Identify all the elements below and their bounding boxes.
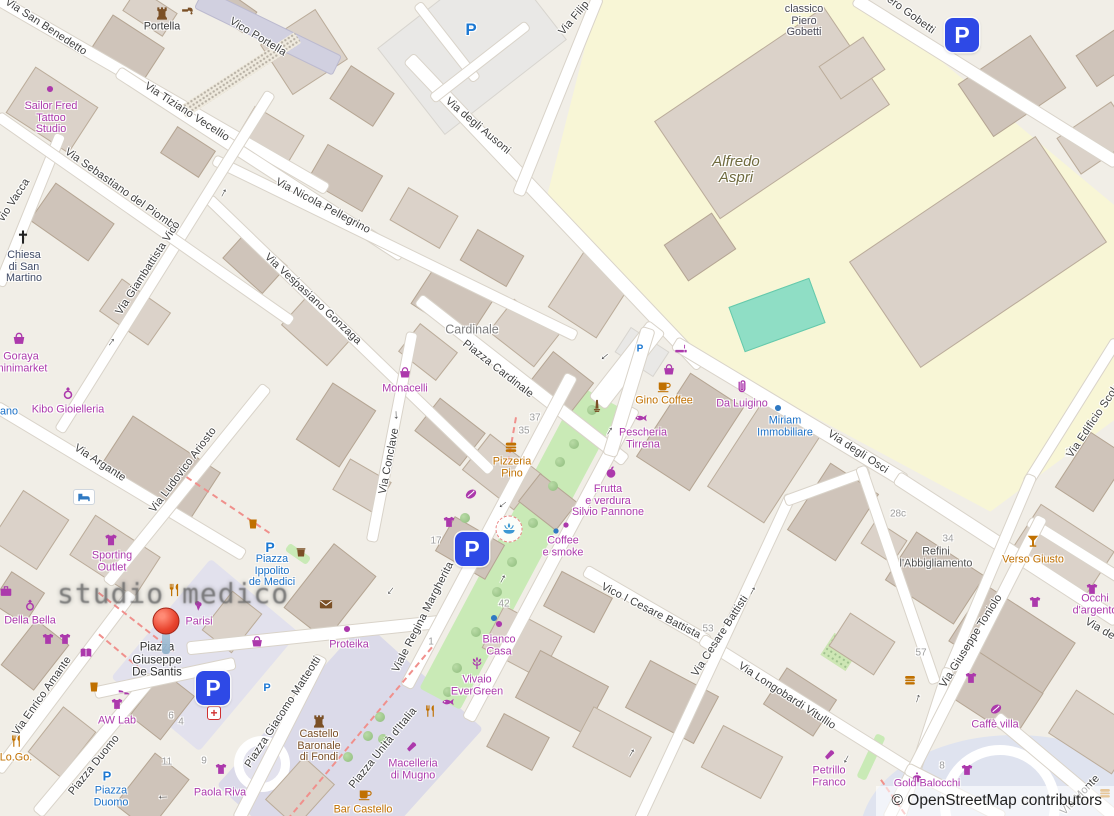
poi-label: Gino Coffee xyxy=(635,395,692,407)
poi-label: Lo.Go. xyxy=(0,752,32,764)
house-number: 6 xyxy=(168,711,174,722)
cross-icon xyxy=(16,230,31,245)
poi-label: Della Bella xyxy=(4,615,56,627)
poi-label: Monacelli xyxy=(382,383,428,395)
poi-label: Coffee e smoke xyxy=(543,536,584,559)
place-label: Refini l'Abbigliamento xyxy=(900,547,973,570)
house-number: 28c xyxy=(890,509,906,520)
one-way-arrow-icon: → xyxy=(393,408,403,421)
poi-label: Goraya minimarket xyxy=(0,352,47,375)
place-label: classico Piero Gobetti xyxy=(785,4,823,39)
parking-icon[interactable]: P xyxy=(945,18,979,52)
place-label: Portella xyxy=(144,21,181,33)
building xyxy=(1075,29,1114,87)
paperclip-icon xyxy=(735,379,750,394)
street-label: Via San Benedetto xyxy=(3,0,89,58)
poi-label: ano xyxy=(0,406,18,418)
street-label: Via Conclave xyxy=(377,427,402,495)
one-way-arrow-icon: → xyxy=(909,690,923,705)
cocktail-icon xyxy=(1026,534,1040,548)
place-label: Chiesa di San Martino xyxy=(6,250,42,285)
dot-icon xyxy=(563,522,569,528)
poi-label: Parisi xyxy=(186,616,213,628)
poi-label: Pizzeria Pino xyxy=(493,457,531,480)
shirt-icon xyxy=(59,633,72,646)
poi-label: Paola Riva xyxy=(194,787,246,799)
knife-icon xyxy=(406,741,419,754)
suitcase-icon xyxy=(0,585,13,598)
map-pin[interactable] xyxy=(153,608,180,635)
drink-icon xyxy=(247,518,259,530)
search-result-watermark: studio medico xyxy=(57,577,289,610)
poi-label: Proteika xyxy=(329,639,369,651)
poi-label: Vivaio EverGreen xyxy=(451,675,503,698)
ring-icon xyxy=(61,386,75,400)
burger-icon xyxy=(904,674,917,687)
poi-label: Sporting Outlet xyxy=(92,551,132,574)
forkknife-icon xyxy=(424,705,437,718)
house-number: 17 xyxy=(430,536,441,547)
dot-icon xyxy=(47,86,54,93)
shirt-icon xyxy=(1029,596,1042,609)
parking-letter: P xyxy=(263,682,270,694)
shirt-icon xyxy=(961,764,974,777)
dot-icon xyxy=(496,621,503,628)
castle-icon xyxy=(155,6,170,21)
attribution-text[interactable]: © OpenStreetMap contributors xyxy=(892,792,1102,810)
book-icon xyxy=(80,647,93,660)
burger-icon xyxy=(504,440,518,454)
shirt-icon xyxy=(965,672,978,685)
parking-letter: P xyxy=(465,20,476,40)
parking-letter: P xyxy=(103,769,112,784)
envelope-icon xyxy=(319,597,333,611)
house-number: 42 xyxy=(498,599,509,610)
attribution-bar: © OpenStreetMap contributors xyxy=(876,786,1114,816)
basket-icon xyxy=(399,367,411,379)
shirt-icon xyxy=(42,633,55,646)
house-number: 57 xyxy=(915,648,926,659)
bin-icon xyxy=(295,546,307,558)
building xyxy=(389,187,458,249)
basket-icon xyxy=(251,636,263,648)
poi-label: Pescheria Tirrena xyxy=(619,428,667,451)
tree-icon xyxy=(492,587,502,597)
basket-icon xyxy=(13,333,26,346)
poi-label: Verso Giusto xyxy=(1002,554,1064,566)
cup-icon xyxy=(358,787,372,801)
bean-icon xyxy=(989,702,1004,717)
building xyxy=(296,382,377,467)
house-number: 9 xyxy=(201,756,207,767)
bean-icon xyxy=(464,487,479,502)
shirt-icon xyxy=(215,763,228,776)
bed-icon xyxy=(78,491,91,504)
poi-label: Da Luigino xyxy=(716,398,768,410)
poi-label: Bianco Casa xyxy=(482,635,515,658)
one-way-arrow-icon: → xyxy=(215,184,230,200)
cup-icon xyxy=(657,379,671,393)
poi-label: Kibo Gioielleria xyxy=(32,404,105,416)
poi-label: Castello Baronale di Fondi xyxy=(297,729,340,764)
building xyxy=(329,65,394,127)
tree-icon xyxy=(452,663,462,673)
shoes-icon xyxy=(118,686,130,698)
apple-icon xyxy=(604,465,618,479)
tree-icon xyxy=(363,731,373,741)
poi-label: Bar Castello xyxy=(334,804,393,816)
house-number: 1 xyxy=(428,637,434,648)
one-way-arrow-icon: → xyxy=(384,584,400,600)
shirt-icon xyxy=(443,516,456,529)
tree-icon xyxy=(548,481,558,491)
tree-icon xyxy=(375,712,385,722)
castle-icon xyxy=(312,714,327,729)
building xyxy=(0,490,69,570)
dot-icon xyxy=(553,528,559,534)
parking-letter: P xyxy=(637,344,644,355)
dot-icon xyxy=(775,405,782,412)
tree-icon xyxy=(555,457,565,467)
place-label: Alfredo Aspri xyxy=(712,154,760,186)
poi-label: Frutta e verdura Silvio Pannone xyxy=(572,484,644,519)
building xyxy=(486,713,550,771)
house-number: 4 xyxy=(178,717,184,728)
tree-icon xyxy=(343,752,353,762)
flower-icon xyxy=(470,656,484,670)
monument-icon xyxy=(590,399,604,413)
tree-icon xyxy=(471,627,481,637)
poi-label: Macelleria di Mugno xyxy=(388,759,437,782)
parking-icon[interactable]: P xyxy=(455,532,489,566)
house-number: 11 xyxy=(162,757,172,768)
tree-icon xyxy=(569,439,579,449)
poi-label: Occhi d'argento xyxy=(1073,594,1114,617)
one-way-arrow-icon: → xyxy=(598,350,614,366)
tree-icon xyxy=(460,513,470,523)
house-number: 53 xyxy=(702,624,713,635)
poi-label: Caffè villa xyxy=(971,719,1018,731)
parking-icon[interactable]: P xyxy=(196,671,230,705)
dot-icon xyxy=(344,626,351,633)
place-label: Cardinale xyxy=(445,324,499,336)
ring-icon xyxy=(24,599,37,612)
map-canvas[interactable]: studio medico © OpenStreetMap contributo… xyxy=(0,0,1114,816)
basket-icon xyxy=(663,364,675,376)
shirt-icon xyxy=(104,533,118,547)
tap-icon xyxy=(181,4,194,17)
cigarette-icon xyxy=(675,343,688,356)
fish-icon xyxy=(635,412,648,425)
tree-icon xyxy=(507,557,517,567)
one-way-arrow-icon: → xyxy=(156,794,169,804)
house-number: 37 xyxy=(529,413,540,424)
poi-label: Petrillo Franco xyxy=(812,766,846,789)
house-number: 35 xyxy=(518,426,529,437)
dot-icon xyxy=(491,615,498,622)
drink-icon xyxy=(88,681,100,693)
fountain-icon xyxy=(496,516,523,543)
poi-label: AW Lab xyxy=(98,715,136,727)
shirt-icon xyxy=(111,698,124,711)
building xyxy=(701,725,784,799)
street-label: Vico I Cesare Battista xyxy=(599,581,702,642)
poi-label: Piazza Duomo xyxy=(94,786,129,809)
house-number: 8 xyxy=(939,761,945,772)
pharmacy-icon: + xyxy=(207,706,221,720)
pin-place-label: Piazza Giuseppe De Santis xyxy=(132,641,182,679)
poi-label: Miriam Immobiliare xyxy=(757,416,813,439)
knife-icon xyxy=(824,749,837,762)
house-number: 34 xyxy=(942,534,953,545)
poi-label: Sailor Fred Tattoo Studio xyxy=(25,101,78,136)
tree-icon xyxy=(528,518,538,528)
